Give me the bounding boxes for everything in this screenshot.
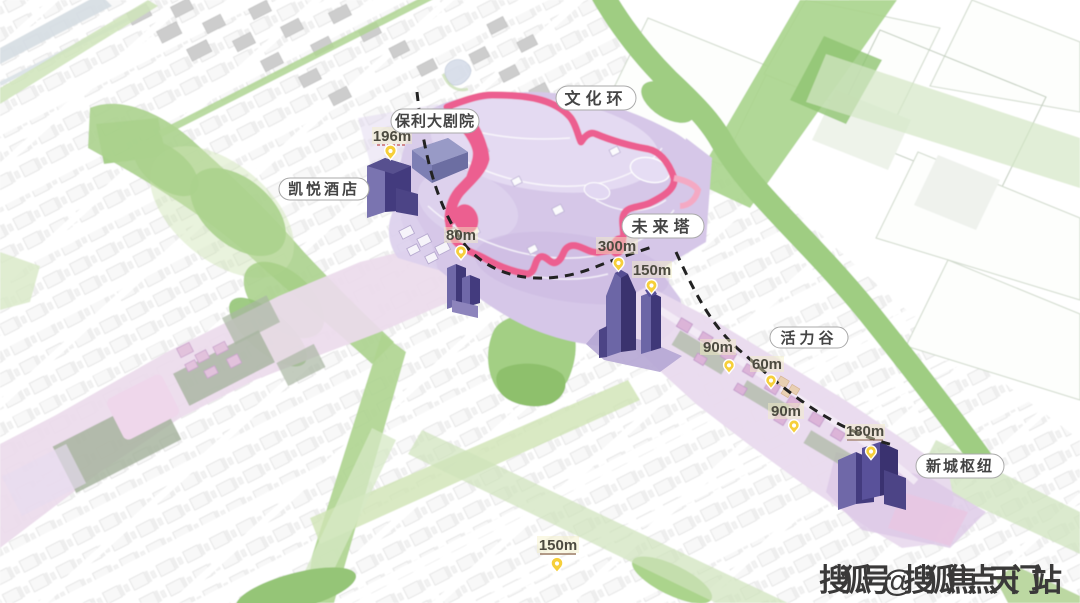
svg-text:60m: 60m: [752, 356, 782, 373]
svg-text:未来塔: 未来塔: [630, 217, 694, 236]
svg-text:文化环: 文化环: [564, 89, 627, 108]
svg-text:搜狐号@搜狐焦点天门站: 搜狐号@搜狐焦点天门站: [819, 563, 1062, 598]
svg-text:150m: 150m: [539, 537, 577, 554]
svg-text:活力谷: 活力谷: [780, 329, 837, 347]
svg-text:180m: 180m: [846, 423, 884, 440]
svg-text:150m: 150m: [633, 262, 671, 279]
svg-text:90m: 90m: [703, 339, 733, 356]
svg-text:新城枢纽: 新城枢纽: [926, 457, 994, 475]
svg-text:保利大剧院: 保利大剧院: [394, 112, 475, 130]
svg-text:80m: 80m: [446, 227, 476, 244]
svg-text:90m: 90m: [771, 403, 801, 420]
svg-text:凯悦酒店: 凯悦酒店: [288, 180, 360, 198]
svg-text:300m: 300m: [598, 238, 636, 255]
